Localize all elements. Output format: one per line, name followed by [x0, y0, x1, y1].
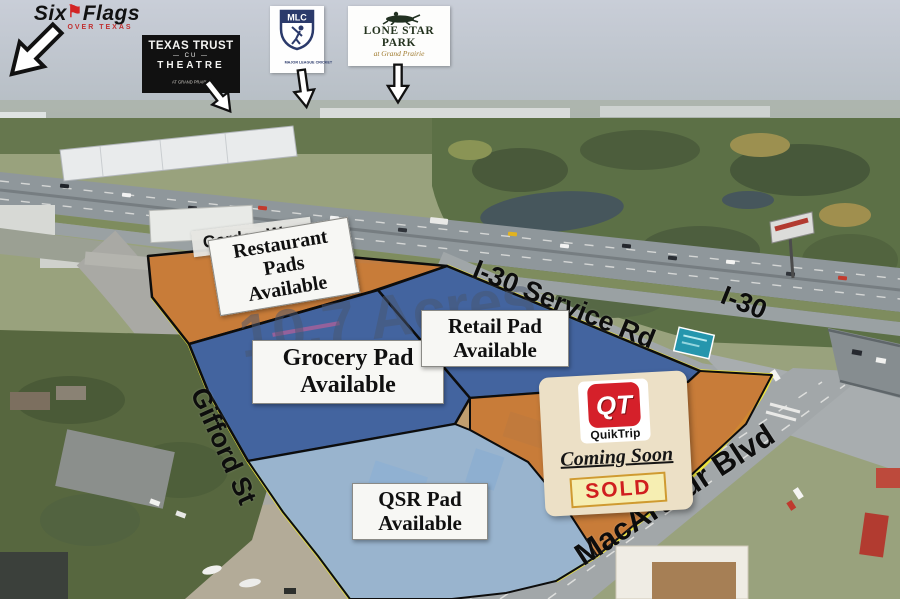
red-flag-icon: ⚑: [67, 2, 83, 21]
retail-pad-label: Retail Pad Available: [421, 310, 569, 367]
lone-star-arrow-icon: [386, 62, 410, 106]
qsr-pad-label: QSR Pad Available: [352, 483, 488, 540]
mlc-logo: MLC MAJOR LEAGUE CRICKET: [270, 6, 324, 73]
lone-star-park-logo: LONE STAR PARK at Grand Prairie: [348, 6, 450, 66]
aerial-site-flyer: 5 10.7 Acres Garden Way I-30 Service Rd …: [0, 0, 900, 599]
quiktrip-logo: QT QuikTrip: [578, 378, 651, 444]
horse-icon: [376, 10, 422, 25]
corner-building: [616, 546, 748, 599]
mlc-shield-icon: MLC: [279, 9, 315, 51]
quiktrip-sold-panel: QT QuikTrip Coming Soon SOLD: [538, 370, 693, 517]
qt-logo-mark: QT: [587, 382, 641, 429]
svg-text:MLC: MLC: [287, 13, 307, 23]
grocery-pad-label: Grocery Pad Available: [252, 340, 444, 404]
coming-soon-text: Coming Soon: [546, 442, 687, 472]
sold-badge: SOLD: [570, 472, 668, 509]
